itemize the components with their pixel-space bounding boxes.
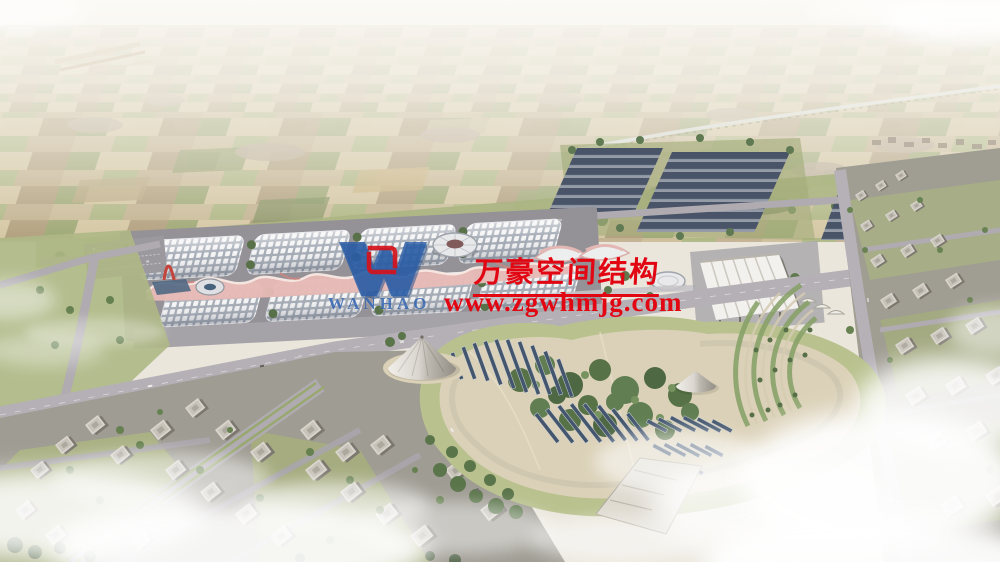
scene-svg — [0, 0, 1000, 562]
aerial-rendering: WANHAO 万豪空间结构 www.zgwhmjg.com — [0, 0, 1000, 562]
